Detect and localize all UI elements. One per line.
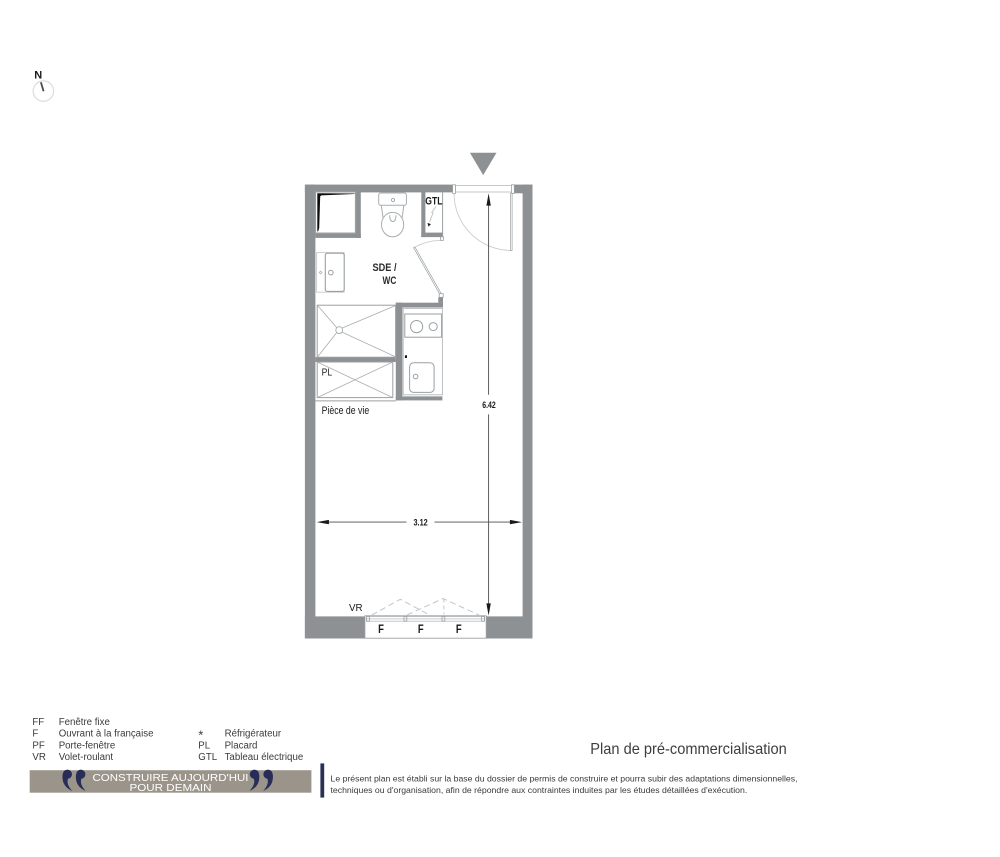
svg-text:6.42: 6.42: [482, 400, 496, 411]
svg-text:GTL: GTL: [198, 752, 217, 763]
svg-text:Porte-fenêtre: Porte-fenêtre: [59, 740, 116, 751]
svg-text:WC: WC: [383, 275, 397, 287]
svg-text:VR: VR: [32, 752, 45, 763]
svg-text:FF: FF: [32, 717, 44, 728]
svg-text:F: F: [456, 624, 462, 636]
svg-text:N: N: [34, 70, 42, 82]
svg-text:SDE /: SDE /: [373, 262, 397, 274]
svg-text:PL: PL: [198, 740, 210, 751]
svg-text:F: F: [32, 729, 38, 740]
svg-text:Pièce de vie: Pièce de vie: [322, 405, 370, 417]
svg-text:POUR DEMAIN: POUR DEMAIN: [130, 782, 212, 794]
svg-text:Réfrigérateur: Réfrigérateur: [225, 729, 282, 740]
svg-text:PL: PL: [322, 366, 333, 378]
svg-text:techniques ou d'organisation,: techniques ou d'organisation, afin de ré…: [331, 785, 748, 795]
svg-text:Placard: Placard: [225, 740, 258, 751]
svg-text:3.12: 3.12: [414, 518, 428, 529]
svg-text:Le présent plan est établi sur: Le présent plan est établi sur la base d…: [331, 774, 798, 784]
svg-text:Fenêtre fixe: Fenêtre fixe: [59, 717, 110, 728]
svg-text:Tableau électrique: Tableau électrique: [225, 752, 304, 763]
svg-text:F: F: [418, 624, 424, 636]
svg-text:GTL: GTL: [425, 196, 442, 208]
svg-text:Plan de pré-commercialisation: Plan de pré-commercialisation: [590, 741, 787, 758]
svg-text:VR: VR: [349, 602, 363, 614]
svg-text:Volet-roulant: Volet-roulant: [59, 752, 114, 763]
svg-text:F: F: [378, 624, 384, 636]
svg-text:PF: PF: [32, 740, 44, 751]
svg-text:Ouvrant à la française: Ouvrant à la française: [59, 729, 154, 740]
